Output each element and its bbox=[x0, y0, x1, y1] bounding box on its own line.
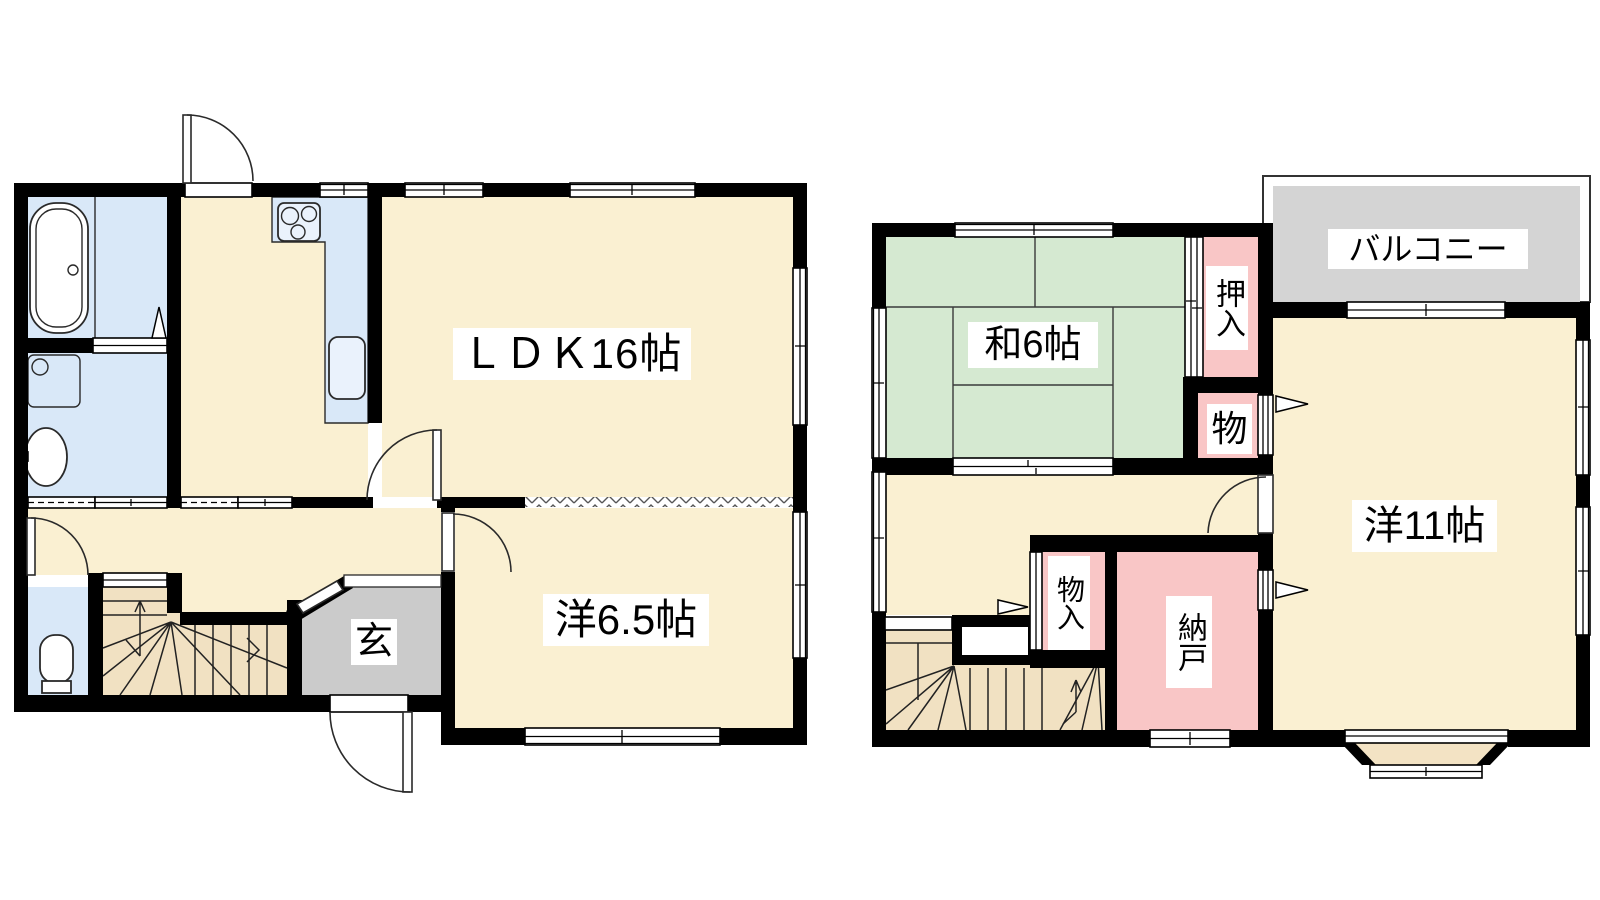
label-nando: 納戸 bbox=[1166, 596, 1212, 688]
accordion-partition bbox=[525, 497, 793, 507]
toilet-icon bbox=[40, 635, 73, 683]
label-entrance: 玄 bbox=[351, 619, 397, 665]
sliding-door-japanese-south bbox=[953, 458, 1113, 475]
label-japanese-6: 和6帖 bbox=[968, 322, 1098, 368]
floorplan-drawing bbox=[0, 0, 1600, 900]
label-oshiire: 押入 bbox=[1206, 266, 1248, 350]
first-floor-plan bbox=[14, 115, 807, 792]
entrance-doorway bbox=[330, 695, 408, 712]
label-ldk: ＬＤＫ16帖 bbox=[453, 328, 691, 380]
window-east-western-11-lower bbox=[1576, 499, 1590, 643]
sliding-door-oshiire bbox=[1185, 237, 1203, 377]
window-right-ldk bbox=[793, 260, 807, 433]
sliding-door-washroom bbox=[28, 497, 167, 508]
hallway-first-floor bbox=[28, 508, 441, 575]
sliding-door-kitchen bbox=[181, 497, 292, 508]
label-western-6-5: 洋6.5帖 bbox=[543, 594, 709, 646]
label-western-11: 洋11帖 bbox=[1352, 500, 1497, 552]
stairs-opening bbox=[103, 573, 167, 587]
floorplan-page: ＬＤＫ16帖 洋6.5帖 玄 和6帖 押入 物 バルコニー 洋11帖 物入 納戸 bbox=[0, 0, 1600, 900]
window-top-ldk-1 bbox=[397, 183, 491, 197]
label-balcony: バルコニー bbox=[1328, 229, 1528, 269]
kitchen-exterior-doorway bbox=[185, 183, 252, 197]
first-floor-rooms bbox=[28, 197, 793, 728]
kitchen-sink-icon bbox=[329, 337, 365, 399]
window-east-western-11-upper bbox=[1576, 332, 1590, 483]
washbasin-icon bbox=[25, 428, 67, 486]
label-monoire: 物入 bbox=[1048, 556, 1090, 650]
window-west-japanese bbox=[872, 300, 886, 466]
stair-void bbox=[952, 615, 1040, 665]
entrance-step-edge bbox=[344, 575, 441, 587]
window-west-hall bbox=[872, 466, 886, 618]
window-top-ldk-2 bbox=[562, 183, 703, 197]
label-storage-small: 物 bbox=[1207, 404, 1252, 454]
window-north-western-11 bbox=[1347, 302, 1505, 318]
stairs-opening-2f bbox=[885, 617, 952, 630]
door-arc-kitchen-exterior bbox=[187, 115, 253, 181]
window-bottom-nando bbox=[1150, 730, 1230, 747]
window-top-japanese bbox=[947, 223, 1121, 237]
window-top-kitchen bbox=[312, 183, 376, 197]
door-arc-entrance bbox=[330, 712, 410, 792]
window-bottom-western-6-5 bbox=[517, 728, 728, 745]
western-11-doorway bbox=[1258, 475, 1273, 533]
hallway-second-floor bbox=[886, 475, 1258, 535]
window-right-western-6-5 bbox=[793, 504, 807, 666]
bathtub-icon bbox=[30, 203, 88, 333]
